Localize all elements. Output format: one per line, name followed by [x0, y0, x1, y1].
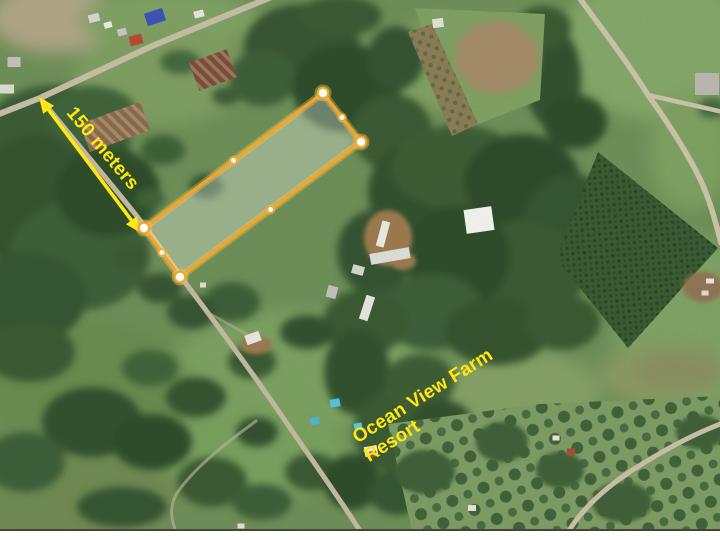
annotation-overlay — [0, 0, 720, 531]
satellite-image: 150 meters Ocean View Farm Resort — [0, 0, 720, 531]
parcel-corner-handle[interactable] — [175, 272, 186, 283]
parcel-midpoint-handle[interactable] — [230, 157, 237, 164]
parcel-polygon-glow — [144, 93, 361, 277]
parcel-corner-handle[interactable] — [318, 88, 329, 99]
parcel-midpoint-handle[interactable] — [339, 114, 346, 121]
screenshot-root: 150 meters Ocean View Farm Resort — [0, 0, 720, 540]
parcel-midpoint-handle[interactable] — [159, 249, 166, 256]
parcel-midpoint-handle[interactable] — [267, 206, 274, 213]
parcel-corner-handle[interactable] — [139, 223, 150, 234]
parcel-corner-handle[interactable] — [356, 137, 367, 148]
